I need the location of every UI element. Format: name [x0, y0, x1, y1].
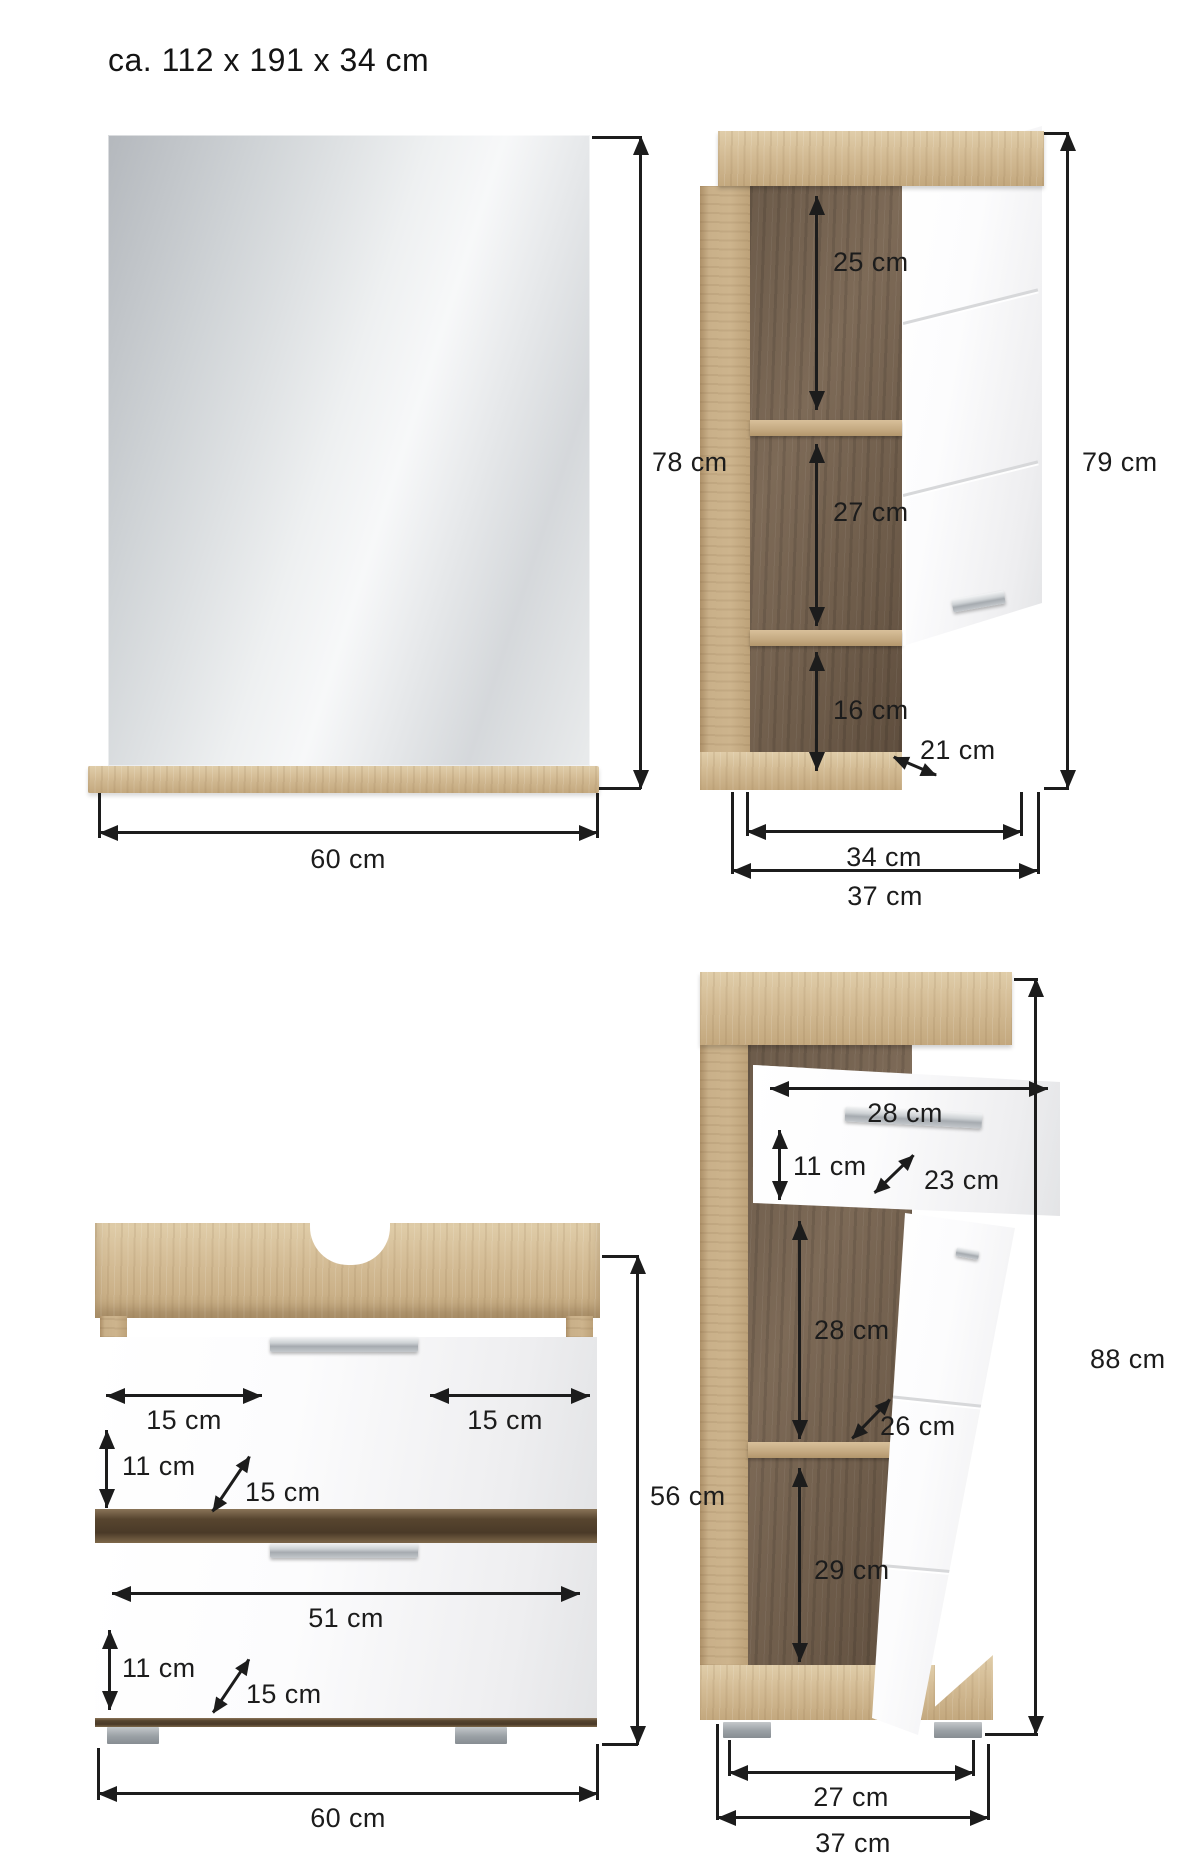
basin-width-dim [98, 1792, 598, 1795]
wall-inner-width-label: 34 cm [846, 843, 922, 871]
basin-right-gap-label: 15 cm [467, 1406, 543, 1434]
basin-cabinet-base-strip [95, 1718, 597, 1727]
tall-inner-width-dim [729, 1771, 974, 1774]
tall-cabinet-side [700, 1045, 748, 1720]
wall-middle-compartment-dim [815, 444, 818, 626]
basin-cabinet-leg [566, 1316, 593, 1338]
cabinet-foot [934, 1722, 982, 1738]
basin-height-label: 56 cm [650, 1482, 726, 1510]
sink-pipe-cutout [310, 1223, 390, 1265]
cabinet-foot [455, 1727, 507, 1744]
basin-cabinet-leg [100, 1316, 127, 1338]
wall-cabinet-door [903, 126, 1042, 646]
basin-drawer-depth2-label: 15 cm [246, 1680, 322, 1708]
wall-cabinet-bottom [700, 752, 902, 790]
tall-upper-compartment-label: 28 cm [814, 1316, 890, 1344]
basin-front-height-dim [105, 1430, 108, 1508]
wall-middle-compartment-label: 27 cm [833, 498, 909, 526]
basin-left-gap-dim [106, 1394, 262, 1397]
basin-drawer-width-label: 51 cm [308, 1604, 384, 1632]
basin-left-gap-label: 15 cm [146, 1406, 222, 1434]
wall-top-compartment-label: 25 cm [833, 248, 909, 276]
drawer-handle [270, 1543, 418, 1558]
wall-top-compartment-dim [815, 196, 818, 410]
door-seam [903, 288, 1039, 325]
tall-height-label: 88 cm [1090, 1345, 1166, 1373]
tall-lower-compartment-dim [798, 1468, 801, 1662]
wall-height-label: 79 cm [1082, 448, 1158, 476]
mirror-width-label: 60 cm [310, 845, 386, 873]
cabinet-foot [723, 1722, 771, 1738]
door-handle [955, 1247, 979, 1260]
wall-height-dim [1066, 132, 1069, 789]
tall-upper-compartment-dim [798, 1221, 801, 1439]
tall-cabinet-shelf [748, 1442, 912, 1458]
door-handle [951, 590, 1005, 612]
door-seam [870, 1563, 1018, 1579]
page-title: ca. 112 x 191 x 34 cm [108, 42, 429, 79]
tall-drawer-depth-label: 23 cm [924, 1166, 1000, 1194]
tall-lower-compartment-label: 29 cm [814, 1556, 890, 1584]
tall-drawer-height-label: 11 cm [793, 1152, 867, 1180]
wall-cabinet-side [700, 186, 750, 790]
basin-width-label: 60 cm [310, 1804, 386, 1832]
basin-front-height2-dim [108, 1630, 111, 1710]
tall-drawer-width-dim [770, 1087, 1048, 1090]
tall-inner-width-label: 27 cm [813, 1783, 889, 1811]
tall-outer-width-dim [717, 1816, 989, 1819]
tall-outer-width-label: 37 cm [815, 1829, 891, 1857]
basin-cabinet-divider [95, 1509, 597, 1543]
basin-front-height-label: 11 cm [122, 1452, 196, 1480]
extension-line [716, 1724, 719, 1820]
mirror-height-dim [639, 136, 642, 789]
wall-cabinet-top [718, 131, 1044, 186]
mirror [108, 135, 590, 766]
basin-cabinet-top [95, 1223, 600, 1318]
wall-inner-width-dim [747, 830, 1022, 833]
basin-height-dim [636, 1255, 639, 1745]
mirror-height-label: 78 cm [652, 448, 728, 476]
mirror-shelf [88, 766, 599, 793]
wall-depth-label: 21 cm [920, 736, 996, 764]
mirror-width-dim [99, 831, 598, 834]
basin-right-gap-dim [430, 1394, 590, 1397]
wall-bottom-compartment-dim [815, 652, 818, 771]
door-seam [903, 460, 1039, 497]
wall-cabinet-shelf [750, 420, 902, 436]
basin-drawer-width-dim [112, 1592, 580, 1595]
wall-bottom-compartment-label: 16 cm [833, 696, 909, 724]
basin-drawer-depth-label: 15 cm [245, 1478, 321, 1506]
cabinet-foot [107, 1727, 159, 1744]
tall-shelf-depth-label: 26 cm [880, 1412, 956, 1440]
tall-cabinet-top [700, 972, 1012, 1045]
drawer-handle [270, 1337, 418, 1352]
wall-outer-width-label: 37 cm [847, 882, 923, 910]
tall-drawer-height-dim [778, 1130, 781, 1200]
dimension-sheet: ca. 112 x 191 x 34 cm 78 cm 60 cm 25 cm … [0, 0, 1200, 1870]
tall-height-dim [1034, 978, 1037, 1735]
tall-drawer-width-label: 28 cm [867, 1099, 943, 1127]
wall-cabinet-shelf [750, 630, 902, 646]
basin-front-height2-label: 11 cm [122, 1654, 196, 1682]
